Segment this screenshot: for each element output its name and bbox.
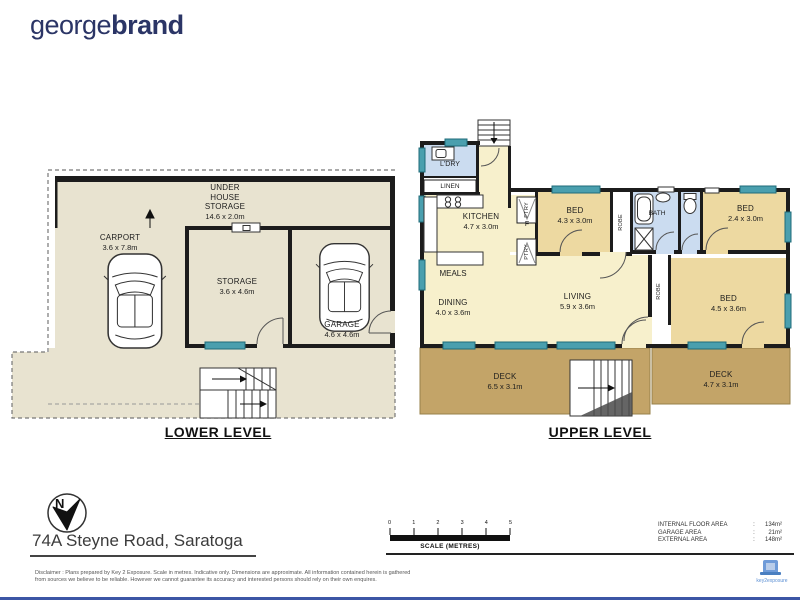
key2exposure-logo-text: key2exposure xyxy=(744,578,800,584)
north-arrow-icon xyxy=(44,490,90,536)
scale-ticks-marks xyxy=(390,528,510,535)
storage-window xyxy=(205,342,245,349)
room-label-bed2: BED 2.4 x 3.0m xyxy=(703,204,788,223)
room-label-bath: BATH xyxy=(633,209,681,219)
room-label-deck1: DECK 6.5 x 3.1m xyxy=(430,372,580,391)
bed2-window-icon xyxy=(705,188,719,193)
bed2-floor xyxy=(703,192,788,254)
entry-stairs-icon xyxy=(478,120,510,146)
scale-bar-label: SCALE (METRES) xyxy=(388,543,512,550)
room-label-dining: DINING 4.0 x 3.6m xyxy=(424,298,482,317)
basin-icon xyxy=(656,193,670,202)
area-table: INTERNAL FLOOR AREA : 134m² GARAGE AREA … xyxy=(658,522,782,545)
room-label-deck2: DECK 4.7 x 3.1m xyxy=(655,370,787,389)
area-row-garage: GARAGE AREA : 21m² xyxy=(658,530,782,538)
room-label-robe-2: ROBE xyxy=(649,262,669,320)
disclaimer-text: Disclaimer : Plans prepared by Key 2 Exp… xyxy=(35,570,655,584)
address-underline xyxy=(30,555,256,557)
room-label-pantry-2: PTRY xyxy=(517,239,536,265)
laundry-sink-icon xyxy=(432,147,454,160)
room-label-bed3: BED 4.5 x 3.6m xyxy=(671,294,786,313)
room-label-under-house-storage: UNDER HOUSE STORAGE 14.6 x 2.0m xyxy=(185,183,265,221)
brand-logo: georgebrand xyxy=(30,10,184,41)
upper-level-title: UPPER LEVEL xyxy=(530,424,670,440)
brand-logo-regular: george xyxy=(30,10,111,40)
footer-divider-line xyxy=(386,553,794,555)
room-label-bed1: BED 4.3 x 3.0m xyxy=(538,206,612,225)
room-label-linen: LINEN xyxy=(424,182,476,192)
room-label-meals: MEALS xyxy=(424,269,482,279)
room-label-robe-1: ROBE xyxy=(611,196,631,248)
room-label-living: LIVING 5.9 x 3.6m xyxy=(500,292,655,311)
address-text: 74A Steyne Road, Saratoga xyxy=(32,531,243,551)
bath-window-icon xyxy=(658,187,674,192)
lower-stairs-icon xyxy=(200,368,276,418)
scale-tick-numbers: 0 1 2 3 4 5 xyxy=(388,520,512,526)
room-label-storage: STORAGE 3.6 x 4.6m xyxy=(195,277,279,296)
driveway-extension xyxy=(12,352,52,418)
garage-car-icon xyxy=(316,244,373,331)
room-label-garage: GARAGE 4.6 x 4.6m xyxy=(298,320,386,339)
lower-level-title: LOWER LEVEL xyxy=(148,424,288,440)
kitchen-bench xyxy=(437,252,483,265)
area-row-external: EXTERNAL AREA : 148m² xyxy=(658,537,782,545)
north-letter: N xyxy=(55,496,64,511)
area-row-internal: INTERNAL FLOOR AREA : 134m² xyxy=(658,522,782,530)
room-label-carport: CARPORT 3.6 x 7.8m xyxy=(78,233,162,252)
key2exposure-logo-icon xyxy=(758,560,784,577)
carport-car-icon xyxy=(104,254,166,348)
room-label-laundry: L'DRY xyxy=(424,160,476,170)
floorplan-page: georgebrand UNDER HOUSE STORAGE 14.6 x 2… xyxy=(0,0,800,600)
scale-bar xyxy=(390,535,510,541)
brand-logo-bold: brand xyxy=(111,10,184,40)
